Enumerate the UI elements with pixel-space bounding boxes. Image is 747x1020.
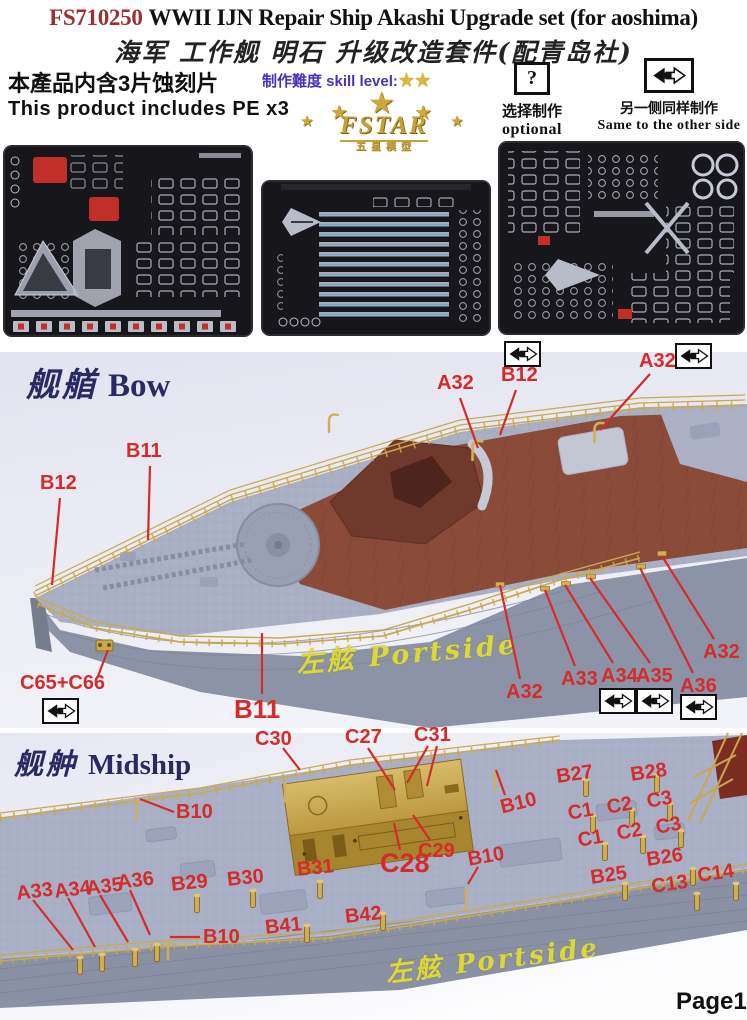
- product-title-en: WWII IJN Repair Ship Akashi Upgrade set …: [149, 5, 698, 30]
- skill-star-icons: ★★: [398, 73, 431, 90]
- page-number: Page1: [676, 988, 747, 1016]
- includes-note-cn: 本產品内含3片蚀刻片: [8, 66, 289, 98]
- fstar-logo: ★ ★ ★ ★ ★ FSTAR 五星模型: [298, 92, 482, 146]
- section-title-midship-cn: 舰舯: [14, 747, 78, 781]
- section-title-bow-cn: 舰艏: [26, 365, 98, 404]
- optional-legend: ? 选择制作 optional: [490, 62, 574, 139]
- section-title-bow-en: Bow: [108, 368, 170, 404]
- skill-star-icon: ★: [399, 71, 414, 90]
- section-title-midship: 舰舯Midship: [14, 741, 191, 783]
- pe-fret-photo-2: [261, 180, 491, 336]
- optional-caption-cn: 选择制作: [490, 100, 574, 121]
- section-title-midship-en: Midship: [88, 749, 191, 781]
- instruction-page: FS710250WWII IJN Repair Ship Akashi Upgr…: [0, 0, 747, 1020]
- product-title: FS710250WWII IJN Repair Ship Akashi Upgr…: [0, 5, 747, 31]
- product-code: FS710250: [49, 5, 142, 30]
- mirror-caption-cn: 另一侧同样制作: [596, 98, 742, 118]
- mirror-legend: 另一侧同样制作 Same to the other side: [596, 58, 742, 134]
- question-icon: ?: [514, 62, 550, 95]
- pe-fret-photo-1: [3, 145, 253, 337]
- fstar-logo-subtext: 五星模型: [356, 138, 416, 153]
- star-icon: ★: [450, 112, 463, 130]
- midship-photo: 舰舯Midship 左舷 Portside: [0, 733, 747, 1020]
- pe-fret-photo-3: [498, 141, 745, 335]
- skill-star-icon: ★: [415, 71, 430, 90]
- optional-caption-en: optional: [490, 121, 574, 139]
- star-icon: ★: [300, 112, 313, 130]
- includes-note-en: This product includes PE x3: [8, 98, 289, 121]
- skill-level: 制作難度 skill level:★★: [262, 70, 430, 91]
- mirror-caption-en: Same to the other side: [596, 118, 742, 134]
- includes-note: 本產品内含3片蚀刻片 This product includes PE x3: [8, 66, 289, 121]
- section-title-bow: 舰艏Bow: [26, 358, 170, 406]
- bow-photo: 舰艏Bow 左舷 Portside: [0, 352, 747, 728]
- same-other-side-icon: [644, 58, 694, 93]
